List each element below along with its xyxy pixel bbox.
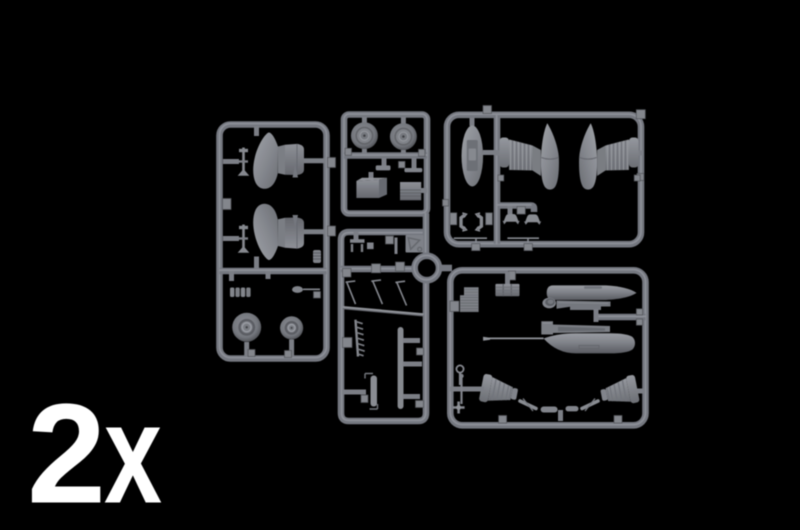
svg-text:x: x bbox=[104, 375, 162, 530]
svg-text:2: 2 bbox=[27, 375, 106, 530]
